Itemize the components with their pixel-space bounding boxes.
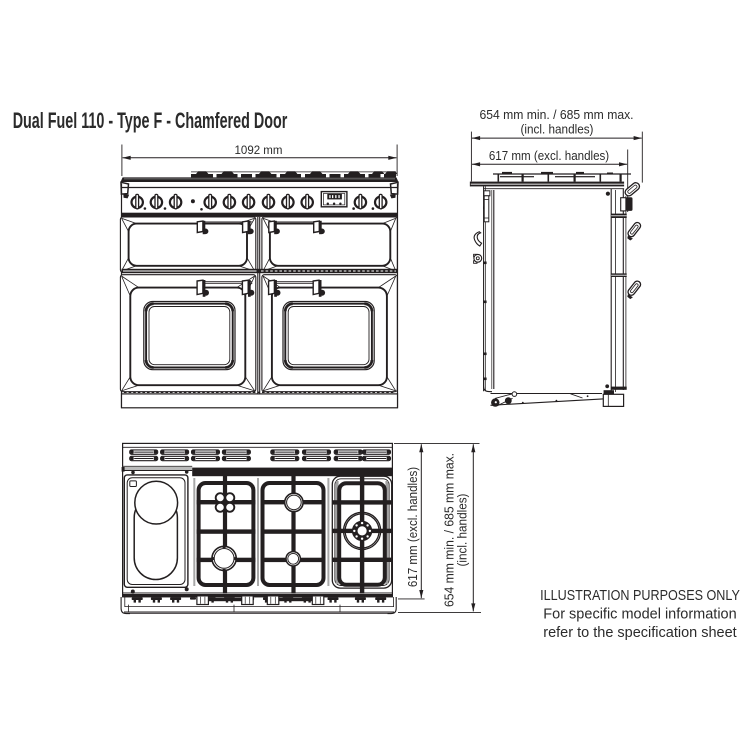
svg-text:Dual Fuel 110 - Type F - Chamf: Dual Fuel 110 - Type F - Chamfered Door	[13, 108, 288, 133]
svg-text:654 mm min. / 685 mm max.: 654 mm min. / 685 mm max.	[479, 107, 633, 122]
svg-text:ILLUSTRATION PURPOSES ONLY: ILLUSTRATION PURPOSES ONLY	[540, 587, 740, 603]
svg-text:617 mm (excl. handles): 617 mm (excl. handles)	[405, 467, 420, 587]
svg-text:(incl. handles): (incl. handles)	[521, 122, 594, 137]
svg-text:(incl. handles): (incl. handles)	[455, 494, 470, 567]
svg-text:1092 mm: 1092 mm	[235, 145, 283, 157]
svg-text:617 mm (excl. handles): 617 mm (excl. handles)	[489, 149, 609, 164]
svg-text:For specific model information: For specific model information	[543, 607, 736, 623]
svg-text:refer to the specification she: refer to the specification sheet	[543, 625, 736, 641]
